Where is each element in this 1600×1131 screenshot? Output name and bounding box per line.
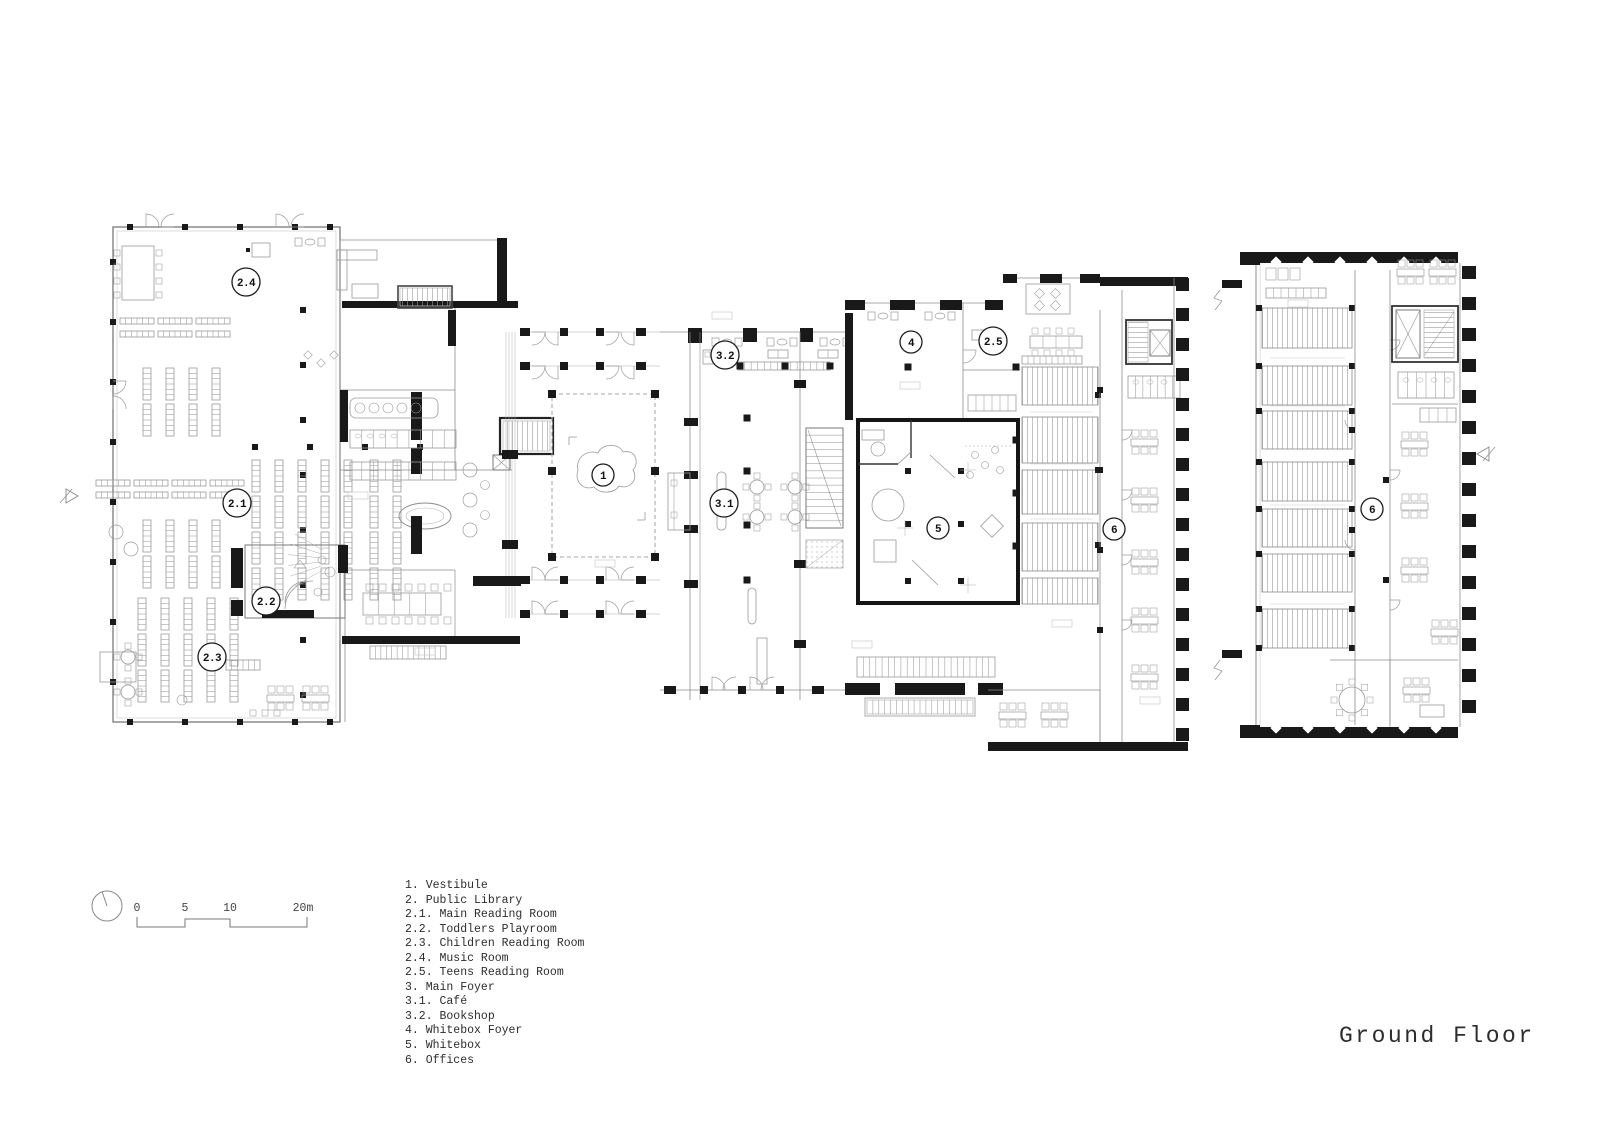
svg-text:1: 1 bbox=[600, 471, 607, 483]
scale-label: 0 bbox=[134, 902, 141, 915]
room-marker: 3.2 bbox=[711, 341, 739, 369]
svg-text:4: 4 bbox=[908, 338, 915, 350]
legend-item: 4. Whitebox Foyer bbox=[405, 1024, 584, 1039]
legend-item: 3.1. Café bbox=[405, 995, 584, 1010]
svg-text:2.5: 2.5 bbox=[984, 337, 1003, 349]
courtyard-vestibule bbox=[473, 328, 660, 618]
room-marker: 6 bbox=[1361, 498, 1383, 520]
plan-drawing bbox=[60, 214, 1495, 751]
north-arrow-icon bbox=[92, 891, 122, 921]
legend-item: 6. Offices bbox=[405, 1054, 584, 1069]
legend-item: 2.5. Teens Reading Room bbox=[405, 966, 584, 981]
toddlers-and-children-rooms bbox=[100, 534, 348, 716]
room-marker: 1 bbox=[592, 464, 614, 486]
scale-label: 10 bbox=[223, 902, 237, 915]
svg-text:3.1: 3.1 bbox=[715, 499, 734, 511]
room-marker: 6 bbox=[1103, 518, 1125, 540]
whitebox-block bbox=[845, 274, 1101, 716]
floor-plan-svg: 12.12.22.32.42.53.13.24566 051020m bbox=[0, 0, 1600, 1131]
svg-text:6: 6 bbox=[1369, 505, 1375, 517]
legend-item: 2.1. Main Reading Room bbox=[405, 908, 584, 923]
scale-bar: 051020m bbox=[134, 902, 314, 927]
room-marker: 2.4 bbox=[232, 268, 260, 296]
room-marker: 2.3 bbox=[198, 643, 226, 671]
annotations: 051020m bbox=[92, 891, 313, 927]
legend-item: 2. Public Library bbox=[405, 894, 584, 909]
scale-label: 20m bbox=[293, 902, 314, 915]
svg-text:2.1: 2.1 bbox=[228, 499, 247, 511]
room-marker: 2.2 bbox=[252, 587, 280, 615]
legend-item: 2.4. Music Room bbox=[405, 952, 584, 967]
drawing-sheet: 12.12.22.32.42.53.13.24566 051020m 1. Ve… bbox=[0, 0, 1600, 1131]
svg-text:2.4: 2.4 bbox=[237, 278, 256, 290]
legend-item: 5. Whitebox bbox=[405, 1039, 584, 1054]
legend: 1. Vestibule2. Public Library2.1. Main R… bbox=[405, 879, 584, 1068]
scale-label: 5 bbox=[182, 902, 189, 915]
right-building-offices bbox=[1214, 252, 1476, 738]
legend-item: 3.2. Bookshop bbox=[405, 1010, 584, 1025]
legend-item: 1. Vestibule bbox=[405, 879, 584, 894]
main-foyer bbox=[660, 312, 850, 700]
room-marker: 5 bbox=[927, 517, 949, 539]
svg-text:5: 5 bbox=[935, 524, 942, 536]
room-marker: 4 bbox=[900, 331, 922, 353]
svg-text:6: 6 bbox=[1111, 525, 1117, 537]
svg-text:2.2: 2.2 bbox=[257, 597, 275, 609]
legend-item: 2.3. Children Reading Room bbox=[405, 937, 584, 952]
svg-text:3.2: 3.2 bbox=[716, 351, 734, 363]
legend-item: 3. Main Foyer bbox=[405, 981, 584, 996]
room-marker: 2.5 bbox=[979, 327, 1007, 355]
central-service-block bbox=[304, 238, 553, 659]
plan-title: Ground Floor bbox=[1339, 1023, 1535, 1049]
svg-text:2.3: 2.3 bbox=[203, 653, 222, 665]
room-markers: 12.12.22.32.42.53.13.24566 bbox=[198, 268, 1383, 671]
legend-item: 2.2. Toddlers Playroom bbox=[405, 923, 584, 938]
room-marker: 2.1 bbox=[223, 489, 251, 517]
room-marker: 3.1 bbox=[710, 489, 738, 517]
